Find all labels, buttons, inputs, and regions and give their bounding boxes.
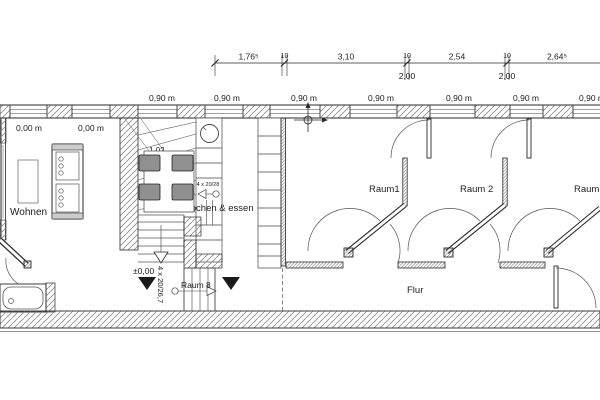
partition-wall — [281, 118, 286, 266]
dim-label: 2,64⁵ — [547, 52, 567, 62]
wall-chunk — [184, 217, 201, 236]
door-post — [444, 248, 453, 257]
chair — [139, 184, 160, 200]
kitchen: 4 x 20/28 kochen & essen — [139, 118, 281, 268]
room-label-raum2: Raum 2 — [460, 184, 493, 195]
chair — [172, 184, 193, 200]
dim-label: 3,10 — [338, 52, 355, 62]
corridor-wall — [398, 262, 445, 268]
corridor-wall — [286, 262, 343, 268]
door-swing-arc — [491, 120, 529, 158]
door-post — [544, 248, 553, 257]
kitchen-counter-left — [196, 118, 222, 262]
door-swing-arc — [390, 224, 400, 263]
stair-spec-kitchen: 4 x 20/28 — [197, 182, 220, 188]
chair — [172, 155, 193, 171]
chimney-wall — [120, 118, 138, 250]
sill-label-high: 0,90 m — [579, 93, 600, 103]
partition-raum1-raum2 — [344, 158, 407, 257]
level-label: ±0,00 — [133, 266, 154, 276]
top-exterior-wall: 0,00 m 0,00 m 0,90 m 0,90 m 0,90 m 0,90 … — [0, 93, 600, 133]
entry-corner — [0, 240, 55, 312]
dim-sublabel: 2,00 — [399, 71, 416, 81]
left-exterior-wall — [0, 118, 6, 240]
sill-label-low: 0,00 m — [16, 123, 42, 133]
room-label-raum8: Raum 8 — [181, 280, 211, 290]
room-label-kochen: kochen & essen — [186, 203, 254, 214]
sill-label-high: 0,90 m — [368, 93, 394, 103]
corridor-wall — [500, 262, 545, 268]
dimension-chain: 1,76⁵ 10 3,10 10 2,54 10 2,64⁵ 2,00 2,00 — [212, 52, 600, 82]
dim-label: 10 — [281, 53, 289, 60]
stair-start-circle — [172, 288, 178, 294]
bottom-exterior-wall — [0, 311, 600, 332]
door-leaf — [554, 266, 558, 308]
sill-label-high: 0,90 m — [513, 93, 539, 103]
room-wohnen: Wohnen — [10, 144, 83, 219]
wall-chunk — [196, 254, 222, 268]
sofa — [52, 144, 83, 219]
door-swing-arc — [408, 208, 480, 251]
dim-label: 2,54 — [449, 52, 466, 62]
wall-pier — [0, 118, 6, 143]
partition-raum2-raum3 — [444, 158, 507, 257]
sill-label-high: 0,90 m — [149, 93, 175, 103]
chair — [139, 155, 160, 171]
door-swing-arc — [308, 208, 380, 251]
wall-pier — [0, 220, 6, 240]
level-triangle-icon — [138, 277, 156, 290]
coffee-table — [18, 160, 38, 203]
dim-label: 1,76⁵ — [238, 52, 258, 62]
door-leaf — [527, 119, 531, 158]
room-top-doors — [391, 119, 531, 158]
level-and-raum8: ±0,00 4 x 20/26,7 Raum 8 — [133, 266, 283, 311]
dim-label: 10 — [503, 53, 511, 60]
room-label-wohnen: Wohnen — [10, 207, 47, 218]
kitchen-counter-right — [258, 118, 281, 268]
door-swing-arc — [391, 120, 429, 158]
floor-plan-drawing: 1,76⁵ 10 3,10 10 2,54 10 2,64⁵ 2,00 2,00 — [0, 0, 600, 400]
dim-label: 10 — [403, 53, 411, 60]
door-swing-arc — [490, 224, 500, 263]
door-swing-arc — [556, 268, 596, 308]
room-label-flur: Flur — [407, 285, 423, 296]
floor-plan-canvas: 1,76⁵ 10 3,10 10 2,54 10 2,64⁵ 2,00 2,00 — [0, 0, 600, 400]
stair-spec-raum8: 4 x 20/26,7 — [156, 266, 165, 303]
door-post — [24, 261, 31, 268]
room-label-raum3: Raum 3 — [574, 184, 600, 195]
wall-pier — [46, 283, 55, 312]
door-swing-arc — [508, 208, 580, 251]
flur-end-door — [554, 266, 596, 308]
wall-chunk — [184, 240, 196, 268]
partition-raum3-edge — [544, 208, 600, 257]
stair-down-arrow-icon — [154, 252, 168, 263]
door-post — [344, 248, 353, 257]
sill-label-high: 0,90 m — [291, 93, 317, 103]
sill-label-high: 0,90 m — [446, 93, 472, 103]
sill-label-high: 0,90 m — [214, 93, 240, 103]
level-triangle-icon — [222, 277, 240, 290]
partitions-and-rooms: Raum1 Raum 2 Raum 3 Flur — [281, 118, 600, 308]
door-leaf — [427, 119, 431, 158]
room-label-raum1: Raum1 — [369, 184, 400, 195]
dim-sublabel: 2,00 — [499, 71, 516, 81]
sill-label-low: 0,00 m — [78, 123, 104, 133]
dining-set — [139, 151, 194, 212]
